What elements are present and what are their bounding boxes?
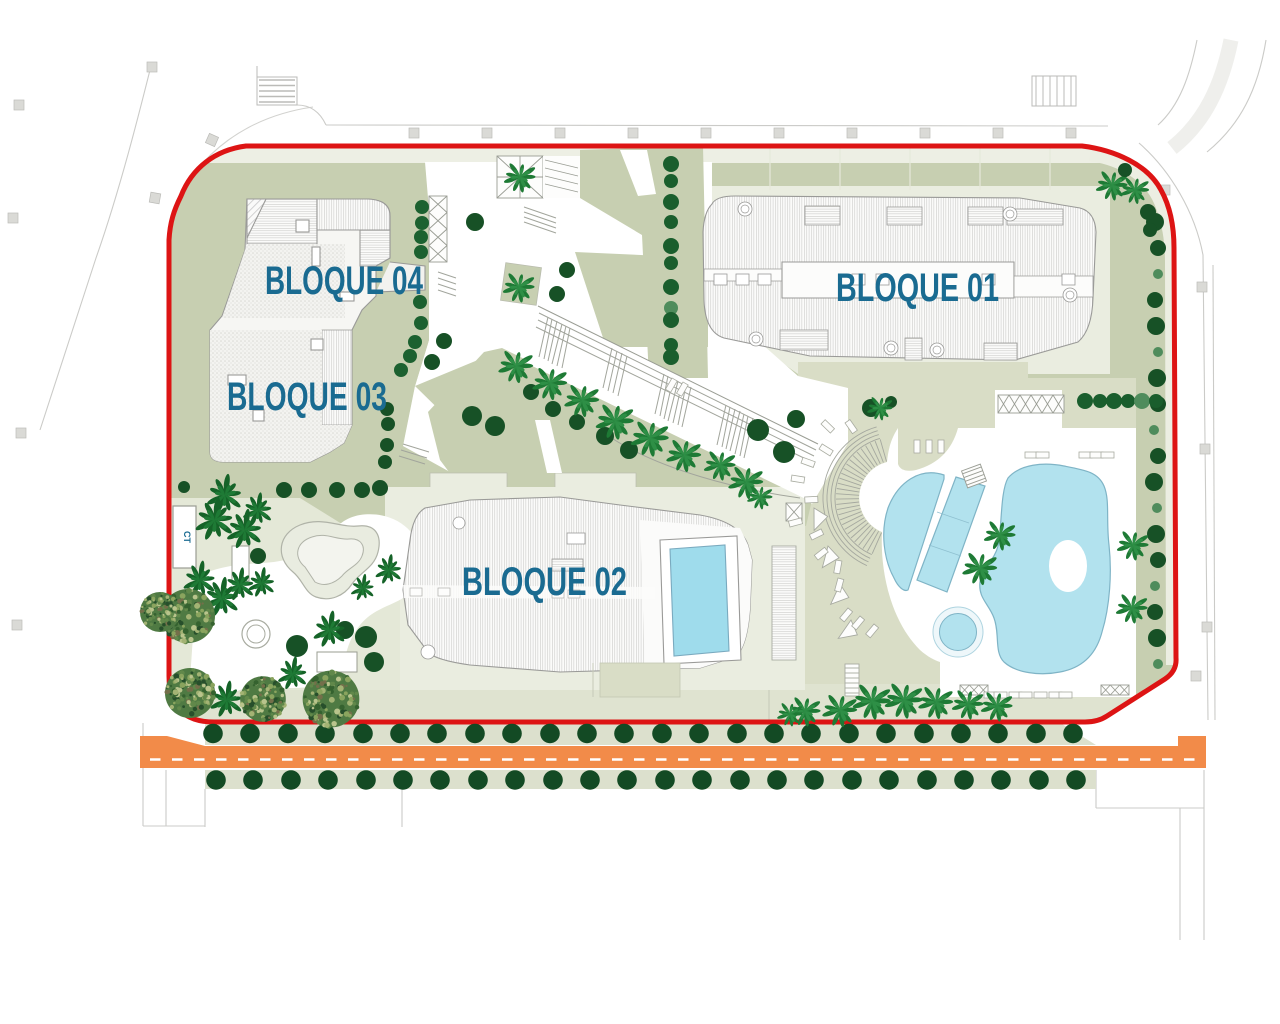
svg-text:BLOQUE 01: BLOQUE 01 [836, 266, 999, 310]
svg-text:BLOQUE 04: BLOQUE 04 [265, 259, 424, 303]
svg-text:CT: CT [182, 531, 192, 543]
svg-text:BLOQUE 02: BLOQUE 02 [462, 560, 627, 604]
svg-text:BLOQUE 03: BLOQUE 03 [227, 375, 387, 419]
